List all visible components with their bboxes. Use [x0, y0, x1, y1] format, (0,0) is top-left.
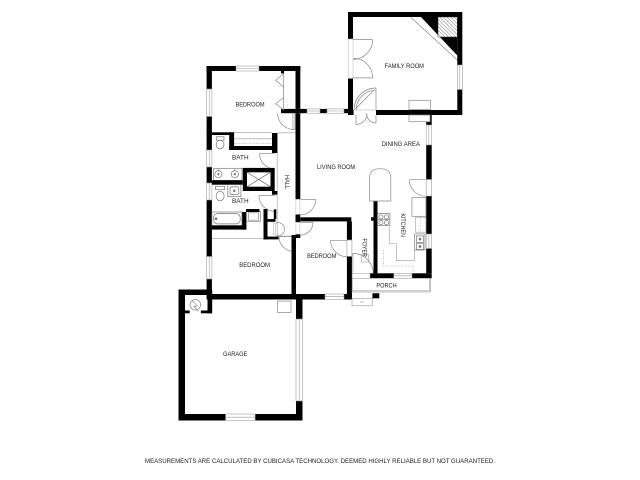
svg-text:BATH: BATH — [232, 154, 249, 161]
svg-text:PORCH: PORCH — [376, 283, 397, 290]
svg-text:KITCHEN: KITCHEN — [399, 213, 406, 237]
svg-text:FOYER: FOYER — [360, 238, 367, 257]
svg-text:BEDROOM: BEDROOM — [239, 262, 270, 269]
svg-text:DINING AREA: DINING AREA — [382, 141, 421, 148]
svg-text:GARAGE: GARAGE — [223, 351, 247, 358]
svg-text:BATH: BATH — [232, 198, 249, 205]
svg-text:BEDROOM: BEDROOM — [307, 253, 336, 260]
svg-text:LIVING ROOM: LIVING ROOM — [317, 164, 355, 171]
svg-text:MEASUREMENTS ARE CALCULATED BY: MEASUREMENTS ARE CALCULATED BY CUBICASA … — [145, 458, 495, 465]
svg-text:HALL: HALL — [283, 175, 290, 189]
svg-text:FAMILY ROOM: FAMILY ROOM — [385, 63, 424, 70]
svg-text:BEDROOM: BEDROOM — [236, 102, 265, 109]
